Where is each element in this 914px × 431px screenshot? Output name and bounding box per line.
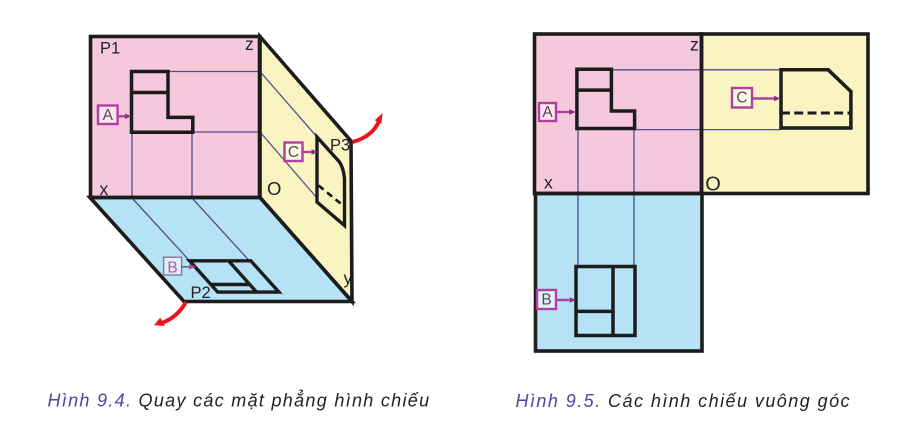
svg-text:B: B (167, 260, 177, 277)
svg-text:P2: P2 (191, 284, 211, 302)
svg-text:O: O (267, 178, 281, 199)
svg-text:O: O (705, 173, 721, 195)
svg-text:Hình 9.5. Các hình chiếu vuông: Hình 9.5. Các hình chiếu vuông góc (516, 391, 852, 411)
svg-text:C: C (736, 90, 747, 107)
svg-text:A: A (542, 104, 553, 121)
svg-text:C: C (288, 144, 299, 161)
svg-text:x: x (544, 173, 553, 193)
svg-text:B: B (541, 292, 551, 309)
svg-text:P3: P3 (330, 137, 350, 155)
svg-text:y: y (344, 268, 353, 288)
svg-text:A: A (103, 107, 114, 124)
svg-text:z: z (690, 35, 699, 55)
svg-text:z: z (245, 34, 254, 54)
svg-text:P1: P1 (100, 40, 120, 58)
svg-text:x: x (100, 179, 109, 199)
svg-text:Hình 9.4. Quay các mặt phẳng h: Hình 9.4. Quay các mặt phẳng hình chiếu (48, 389, 431, 410)
